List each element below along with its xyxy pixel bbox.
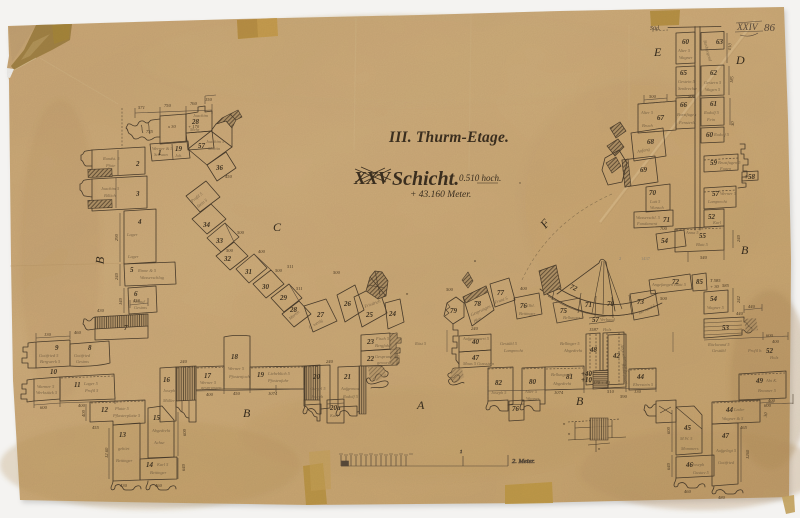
svg-text:240: 240 [326, 359, 334, 364]
svg-text:+10: +10 [581, 376, 592, 384]
svg-text:1587: 1587 [589, 327, 599, 332]
svg-text:Holz: Holz [769, 355, 779, 360]
svg-text:1: 1 [158, 149, 162, 157]
svg-text:12: 12 [101, 406, 109, 414]
svg-text:Anna 5: Anna 5 [685, 230, 699, 235]
svg-text:Gurgel 5: Gurgel 5 [310, 386, 326, 391]
svg-text:29: 29 [279, 294, 288, 302]
svg-text:22: 22 [366, 355, 375, 363]
svg-text:400: 400 [206, 392, 214, 397]
svg-text:500: 500 [660, 296, 668, 301]
svg-text:31: 31 [244, 268, 252, 276]
svg-text:75: 75 [560, 307, 568, 315]
svg-text:Achse: Achse [153, 440, 165, 445]
svg-text:430: 430 [120, 483, 128, 488]
svg-text:500: 500 [446, 287, 454, 292]
svg-text:53: 53 [722, 324, 730, 332]
svg-text:gesprungen: gesprungen [201, 385, 222, 390]
svg-text:Fisch 5: Fisch 5 [375, 336, 390, 341]
svg-text:Lager: Lager [127, 254, 139, 259]
svg-text:Bettinger: Bettinger [519, 311, 536, 316]
svg-text:500: 500 [275, 268, 283, 273]
svg-text:44: 44 [725, 406, 734, 414]
svg-text:+ 43.160 Meter.: + 43.160 Meter. [410, 190, 471, 200]
svg-text:62: 62 [710, 69, 718, 77]
svg-text:Fein: Fein [706, 117, 716, 122]
svg-text:500: 500 [226, 248, 234, 253]
svg-text:15: 15 [153, 414, 161, 422]
svg-text:Karl: Karl [712, 220, 722, 225]
svg-text:16: 16 [163, 376, 171, 384]
svg-text:500: 500 [333, 270, 341, 275]
svg-text:Maas 5 Gussstein: Maas 5 Gussstein [462, 361, 495, 366]
svg-text:Karl 5: Karl 5 [156, 462, 169, 467]
svg-text:Holz: Holz [602, 327, 612, 332]
svg-text:240: 240 [114, 272, 119, 280]
svg-text:460: 460 [684, 489, 692, 494]
svg-text:26: 26 [343, 300, 352, 308]
svg-text:242: 242 [736, 295, 741, 303]
svg-text:Gottfried: Gottfried [718, 460, 735, 465]
svg-text:Borstfugen: Borstfugen [677, 112, 697, 117]
svg-text:23: 23 [366, 338, 375, 346]
svg-text:79: 79 [450, 307, 458, 315]
svg-text:71: 71 [663, 216, 670, 224]
svg-text:7: 7 [124, 324, 128, 332]
svg-text:55: 55 [699, 232, 707, 240]
svg-text:61: 61 [710, 100, 717, 108]
svg-text:Lutt 5: Lutt 5 [649, 199, 661, 204]
svg-text:14: 14 [146, 461, 154, 469]
svg-text:11: 11 [74, 381, 81, 389]
svg-text:700: 700 [660, 226, 668, 231]
svg-text:76: 76 [512, 405, 520, 413]
svg-text:36: 36 [215, 164, 224, 172]
svg-text:Joseph: Joseph [311, 394, 324, 399]
svg-text:600: 600 [764, 403, 772, 408]
svg-text:500: 500 [237, 230, 245, 235]
svg-text:1260: 1260 [745, 449, 750, 459]
svg-text:67: 67 [657, 114, 665, 122]
svg-text:Bellunger 5: Bellunger 5 [563, 315, 584, 320]
svg-text:69: 69 [640, 166, 648, 174]
svg-text:9: 9 [55, 344, 59, 352]
svg-text:Schicht.: Schicht. [392, 168, 459, 190]
svg-text:600: 600 [766, 333, 774, 338]
svg-text:Eberstein 5: Eberstein 5 [632, 382, 654, 387]
svg-text:Bergwerk 5: Bergwerk 5 [40, 359, 61, 364]
svg-text:Wagen 5: Wagen 5 [705, 87, 721, 92]
svg-text:Profil b.: Profil b. [747, 348, 762, 353]
svg-text:1074: 1074 [554, 390, 564, 395]
svg-text:59: 59 [710, 159, 718, 167]
svg-text:47: 47 [721, 432, 730, 440]
svg-text:Wagner 5: Wagner 5 [707, 305, 725, 310]
svg-text:60: 60 [706, 131, 714, 139]
svg-text:Rudolf 5: Rudolf 5 [703, 110, 720, 115]
svg-text:Bellinger 5: Bellinger 5 [560, 341, 580, 346]
svg-text:Brauner 5: Brauner 5 [758, 388, 777, 393]
svg-text:455: 455 [92, 425, 100, 430]
svg-text:Rudolf 5: Rudolf 5 [342, 394, 359, 399]
svg-text:49: 49 [755, 377, 764, 385]
svg-text:71: 71 [585, 301, 592, 309]
svg-text:III. Thurm-Etage.: III. Thurm-Etage. [388, 129, 509, 146]
svg-text:28: 28 [191, 118, 200, 126]
svg-text:Senkrechte: Senkrechte [678, 86, 697, 91]
svg-text:45: 45 [683, 424, 692, 432]
svg-text:73: 73 [637, 298, 645, 306]
svg-text:Pflasterplatte 5: Pflasterplatte 5 [112, 413, 141, 418]
svg-text:x 30: x 30 [167, 124, 176, 129]
svg-text:8: 8 [88, 344, 92, 352]
svg-text:60: 60 [682, 38, 690, 46]
svg-text:Abgedreht: Abgedreht [563, 348, 583, 353]
svg-text:440: 440 [748, 304, 756, 309]
svg-text:82: 82 [495, 379, 503, 387]
svg-text:750: 750 [164, 103, 172, 108]
svg-text:44: 44 [636, 373, 645, 381]
svg-text:1: 1 [460, 449, 462, 454]
svg-text:Joseph: Joseph [692, 462, 705, 467]
svg-text:3: 3 [135, 190, 140, 198]
svg-text:E: E [653, 45, 662, 59]
svg-text:21: 21 [343, 373, 351, 381]
svg-text:12.60: 12.60 [104, 447, 109, 458]
svg-text:4: 4 [137, 218, 142, 226]
svg-text:511: 511 [287, 264, 294, 269]
svg-text:Fensterle: Fensterle [678, 120, 696, 125]
svg-text:450: 450 [133, 298, 141, 303]
svg-text:70: 70 [607, 300, 615, 308]
svg-text:Gestühl 5: Gestühl 5 [500, 341, 518, 346]
svg-text:Mommers: Mommers [680, 446, 699, 451]
svg-text:80: 80 [529, 378, 537, 386]
svg-text:Billich: Billich [104, 193, 117, 198]
svg-text:32: 32 [223, 255, 232, 263]
svg-text:Abgedreht: Abgedreht [151, 428, 171, 433]
svg-text:Müller: Müller [162, 398, 175, 403]
svg-text:30: 30 [261, 283, 270, 291]
svg-text:0.510 hoch.: 0.510 hoch. [459, 173, 501, 183]
svg-text:Gesims: Gesims [76, 359, 89, 364]
svg-text:T 585: T 585 [710, 278, 721, 283]
svg-text:18: 18 [231, 353, 239, 361]
svg-text:Rundst. 5: Rundst. 5 [102, 156, 120, 161]
svg-text:Gottfried: Gottfried [74, 353, 91, 358]
svg-text:Gustav 5: Gustav 5 [693, 470, 710, 475]
svg-text:57: 57 [712, 190, 720, 198]
svg-text:25: 25 [365, 311, 374, 319]
svg-text:Wunsch: Wunsch [650, 205, 664, 210]
svg-text:Gestühl: Gestühl [712, 348, 726, 353]
svg-text:Wagner: Wagner [679, 55, 693, 60]
svg-text:B: B [741, 243, 749, 257]
svg-text:150: 150 [205, 97, 213, 102]
svg-text:240: 240 [471, 326, 479, 331]
svg-text:13: 13 [119, 431, 127, 439]
svg-text:C: C [273, 220, 282, 234]
svg-text:Wasserschlag: Wasserschlag [140, 275, 165, 280]
svg-text:Wagner: Wagner [526, 396, 540, 401]
svg-text:Pfostenjoch: Pfostenjoch [228, 374, 251, 379]
svg-text:Wagner & 5: Wagner & 5 [722, 416, 744, 421]
svg-text:Fundament: Fundament [636, 221, 658, 226]
svg-text:400: 400 [520, 286, 528, 291]
svg-text:Joachim 5: Joachim 5 [206, 139, 225, 144]
svg-text:430: 430 [97, 308, 105, 313]
svg-text:640: 640 [666, 462, 671, 470]
svg-text:Joachim 5: Joachim 5 [101, 186, 120, 191]
svg-text:130: 130 [44, 332, 52, 337]
svg-text:42: 42 [612, 352, 621, 360]
svg-text:760: 760 [190, 101, 198, 106]
svg-text:511: 511 [296, 286, 303, 291]
svg-text:52: 52 [766, 347, 774, 355]
svg-text:735: 735 [146, 129, 154, 134]
svg-text:6: 6 [134, 290, 138, 298]
svg-text:010: 010 [727, 42, 733, 50]
svg-text:17: 17 [204, 372, 212, 380]
svg-text:Werner 5: Werner 5 [228, 366, 245, 371]
svg-text:500: 500 [649, 94, 657, 99]
svg-text:Gestein 5: Gestein 5 [678, 79, 696, 84]
svg-text:85: 85 [696, 278, 704, 286]
svg-text:571: 571 [138, 105, 145, 110]
svg-text:400: 400 [81, 409, 86, 417]
svg-text:Liebeblich 5: Liebeblich 5 [267, 371, 291, 376]
svg-text:640: 640 [181, 463, 186, 471]
svg-text:70: 70 [649, 189, 657, 197]
svg-text:Fugen: Fugen [719, 166, 732, 171]
svg-text:Lamprecht: Lamprecht [503, 348, 524, 353]
svg-text:Werkstück 5: Werkstück 5 [36, 390, 58, 395]
svg-text:2: 2 [135, 160, 140, 168]
svg-text:585: 585 [722, 283, 730, 288]
svg-text:20: 20 [312, 373, 321, 381]
svg-text:20a: 20a [329, 404, 341, 412]
svg-text:Rudolf 5: Rudolf 5 [713, 132, 730, 137]
svg-text:Joh.: Joh. [175, 153, 182, 158]
svg-text:500: 500 [688, 94, 696, 99]
svg-text:Joachim: Joachim [193, 113, 208, 118]
svg-text:Gottfried 5: Gottfried 5 [39, 353, 59, 358]
svg-text:440: 440 [736, 311, 744, 316]
svg-text:600: 600 [666, 426, 671, 434]
svg-text:57: 57 [592, 316, 600, 324]
svg-text:130: 130 [634, 389, 642, 394]
svg-text:450: 450 [233, 391, 241, 396]
svg-text:Lager 5: Lager 5 [83, 381, 99, 386]
svg-text:Bettinger: Bettinger [150, 470, 167, 475]
svg-text:600: 600 [40, 405, 48, 410]
svg-text:400: 400 [772, 339, 780, 344]
svg-text:600: 600 [182, 428, 187, 436]
svg-text:Aufgelegt 5: Aufgelegt 5 [715, 448, 737, 453]
svg-text:Platte 5: Platte 5 [114, 406, 130, 411]
svg-text:68: 68 [647, 138, 655, 146]
svg-text:66: 66 [680, 101, 688, 109]
svg-text:240: 240 [180, 359, 188, 364]
svg-text:Gesims: Gesims [134, 305, 147, 310]
svg-text:185: 185 [729, 75, 735, 83]
svg-text:D: D [735, 53, 745, 67]
svg-text:19: 19 [257, 371, 265, 379]
svg-text:460: 460 [155, 483, 163, 488]
svg-text:5: 5 [130, 266, 134, 274]
svg-text:24: 24 [388, 310, 397, 318]
svg-text:Aufgemauert 5: Aufgemauert 5 [462, 336, 490, 341]
svg-text:Rückwand 5: Rückwand 5 [707, 342, 730, 347]
svg-text:19: 19 [175, 145, 183, 153]
svg-text:B: B [243, 406, 251, 420]
svg-text:57: 57 [198, 142, 206, 150]
svg-text:540: 540 [700, 255, 708, 260]
svg-text:1437: 1437 [641, 256, 651, 261]
svg-text:Alter 5: Alter 5 [640, 110, 654, 115]
svg-text:86: 86 [764, 22, 776, 34]
svg-text:Pfote: Pfote [105, 163, 115, 168]
svg-text:Rüst 5: Rüst 5 [414, 341, 427, 346]
svg-text:Bruch: Bruch [642, 123, 654, 128]
svg-text:Wasserschl. 5: Wasserschl. 5 [636, 215, 661, 220]
svg-text:450: 450 [225, 174, 233, 179]
svg-text:65: 65 [680, 69, 688, 77]
svg-text:A: A [416, 398, 425, 412]
svg-text:Rinne & 5: Rinne & 5 [137, 268, 157, 273]
svg-text:290: 290 [114, 233, 119, 241]
svg-text:+ 30: + 30 [710, 284, 720, 289]
svg-text:48: 48 [589, 346, 598, 354]
svg-text:B: B [576, 394, 584, 408]
svg-text:400: 400 [78, 403, 86, 408]
svg-text:Pfostenfuhr: Pfostenfuhr [267, 378, 289, 383]
svg-text:Verband: Verband [600, 317, 615, 322]
svg-text:Bettinger: Bettinger [116, 458, 133, 463]
svg-text:510: 510 [607, 389, 615, 394]
svg-text:Warmer 5: Warmer 5 [37, 384, 55, 389]
svg-text:Profil 5: Profil 5 [84, 388, 99, 393]
svg-text:10: 10 [50, 368, 58, 376]
svg-text:34: 34 [202, 221, 211, 229]
svg-text:54: 54 [710, 295, 718, 303]
svg-text:Bellunger 5: Bellunger 5 [551, 372, 572, 377]
svg-text:M.W. 5: M.W. 5 [679, 436, 693, 441]
svg-text:gehört: gehört [118, 446, 130, 451]
svg-text:400: 400 [258, 249, 266, 254]
svg-text:1074: 1074 [268, 391, 278, 396]
svg-text:Brustfugen 5: Brustfugen 5 [718, 160, 741, 165]
svg-text:460: 460 [74, 330, 82, 335]
svg-text:Süd.: Süd. [650, 26, 661, 32]
svg-text:2. Meter.: 2. Meter. [512, 458, 535, 465]
svg-text:480: 480 [718, 495, 726, 500]
svg-text:Abgedreht: Abgedreht [552, 381, 572, 386]
svg-text:140: 140 [118, 297, 123, 305]
svg-text:590: 590 [620, 394, 628, 399]
svg-text:33: 33 [215, 237, 224, 245]
svg-text:Martin: Martin [207, 146, 221, 151]
svg-text:Werner & 5: Werner & 5 [152, 146, 173, 151]
svg-text:Werner 5: Werner 5 [720, 191, 737, 196]
svg-text:Lamprecht: Lamprecht [707, 199, 728, 204]
svg-text:Lager: Lager [126, 232, 138, 237]
svg-text:Mehr: Mehr [189, 127, 200, 132]
svg-text:63: 63 [716, 38, 724, 46]
svg-text:2: 2 [619, 256, 621, 261]
svg-text:Obl.: Obl. [527, 303, 535, 308]
svg-text:Leder: Leder [733, 407, 745, 412]
svg-text:Abt K.: Abt K. [765, 378, 777, 383]
svg-text:Alter 5: Alter 5 [677, 48, 691, 53]
svg-text:Gestern 5: Gestern 5 [704, 80, 722, 85]
svg-text:Blatt 5: Blatt 5 [696, 242, 709, 247]
svg-text:240: 240 [736, 234, 741, 242]
svg-text:Angefangen Blatt 5: Angefangen Blatt 5 [651, 282, 687, 287]
svg-text:54: 54 [661, 237, 669, 245]
